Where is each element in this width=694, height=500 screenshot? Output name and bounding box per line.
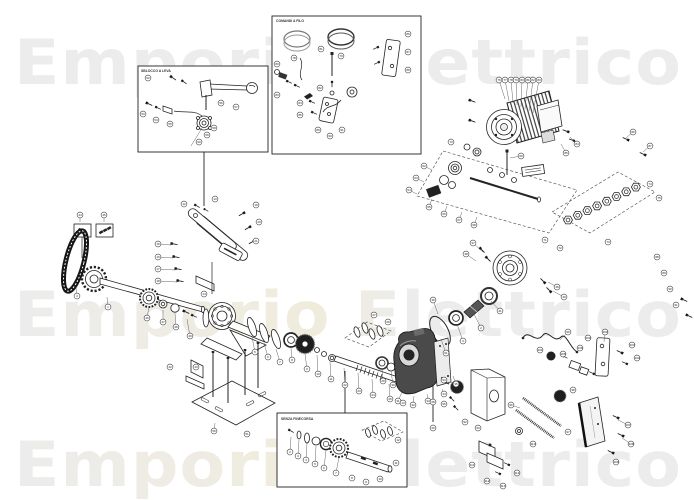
part-callout: 93 — [475, 425, 481, 431]
part-callout: 10 — [377, 476, 383, 482]
svg-text:67: 67 — [457, 218, 461, 222]
part-callout: 71 — [542, 237, 548, 243]
electric-motor — [468, 91, 647, 157]
svg-text:51: 51 — [245, 432, 249, 436]
part-callout: 86 — [626, 129, 636, 138]
svg-text:94: 94 — [442, 378, 446, 382]
part-callout: 70 — [448, 139, 454, 145]
part-callout: 14 — [201, 291, 207, 297]
svg-text:105: 105 — [560, 352, 565, 356]
part-callout: 32 — [410, 396, 416, 408]
part-callout: 92 — [462, 419, 468, 425]
svg-text:86: 86 — [631, 130, 635, 134]
part-callout: 13 — [212, 196, 218, 202]
svg-text:77: 77 — [503, 78, 507, 82]
svg-text:95: 95 — [442, 402, 446, 406]
svg-text:54: 54 — [154, 118, 158, 122]
svg-text:33: 33 — [426, 399, 430, 403]
part-callout: 11 — [393, 460, 399, 466]
svg-text:106: 106 — [577, 346, 582, 350]
svg-text:85: 85 — [298, 113, 302, 117]
part-callout: 42 — [167, 364, 173, 370]
svg-text:39: 39 — [555, 285, 559, 289]
part-callout: 58 — [211, 125, 217, 131]
svg-text:113: 113 — [501, 484, 506, 488]
svg-text:48: 48 — [174, 325, 178, 329]
svg-text:59: 59 — [205, 133, 209, 137]
part-callout: 8 — [349, 475, 355, 481]
svg-text:14: 14 — [202, 292, 206, 296]
svg-text:87: 87 — [648, 144, 652, 148]
part-callout: 67 — [456, 212, 462, 223]
svg-text:28: 28 — [386, 320, 390, 324]
svg-text:62: 62 — [422, 164, 426, 168]
svg-text:88: 88 — [406, 68, 410, 72]
svg-text:102: 102 — [602, 330, 607, 334]
part-callout: 44 — [77, 212, 83, 222]
svg-text:55: 55 — [168, 122, 172, 126]
svg-text:107: 107 — [625, 423, 630, 427]
part-callout: 89 — [315, 127, 321, 133]
part-callout: 38 — [463, 251, 476, 261]
svg-text:47: 47 — [161, 320, 165, 324]
svg-text:58: 58 — [212, 126, 216, 130]
coupling-kit-group — [417, 144, 577, 233]
svg-text:24: 24 — [371, 393, 375, 397]
svg-text:23: 23 — [357, 389, 361, 393]
svg-text:88: 88 — [655, 255, 659, 259]
svg-text:27: 27 — [372, 313, 376, 317]
svg-text:109: 109 — [613, 460, 618, 464]
part-callout: 106 — [577, 345, 583, 351]
svg-text:43: 43 — [194, 365, 198, 369]
svg-text:12: 12 — [396, 438, 400, 442]
inset-label-release: SBLOCCO A LEVA — [141, 69, 171, 73]
inset-box-no-limit-switch: SENZA FINECORSA — [277, 371, 407, 487]
svg-text:103: 103 — [629, 343, 634, 347]
part-callout: 65 — [426, 199, 432, 210]
part-callout: 11 — [328, 362, 334, 382]
svg-text:18: 18 — [156, 279, 160, 283]
part-callout: 15 — [155, 241, 171, 247]
part-callout: 96 — [508, 402, 520, 408]
svg-text:12: 12 — [182, 202, 186, 206]
part-callout: 24 — [370, 379, 376, 398]
part-callout: 110 — [530, 441, 536, 447]
svg-text:89: 89 — [662, 271, 666, 275]
svg-text:13: 13 — [213, 197, 217, 201]
svg-text:81: 81 — [526, 78, 530, 82]
svg-text:66: 66 — [442, 212, 446, 216]
part-callout: 91 — [339, 127, 345, 133]
svg-text:61: 61 — [444, 351, 448, 355]
svg-text:57: 57 — [234, 105, 238, 109]
svg-text:91: 91 — [340, 128, 344, 132]
part-callout: 59 — [204, 132, 210, 138]
part-callout: 34 — [441, 389, 447, 397]
part-callout: 90 — [667, 286, 673, 292]
part-callout: 86 — [405, 31, 411, 37]
svg-text:52: 52 — [146, 76, 150, 80]
svg-text:30: 30 — [391, 383, 395, 387]
svg-text:38: 38 — [464, 252, 468, 256]
part-callout: 63 — [413, 175, 424, 182]
svg-text:83: 83 — [537, 78, 541, 82]
svg-text:82: 82 — [531, 78, 535, 82]
part-callout: 95 — [441, 401, 447, 407]
svg-text:15: 15 — [156, 242, 160, 246]
part-callout: 27 — [371, 312, 377, 318]
part-callout: 13 — [400, 400, 406, 406]
svg-text:25: 25 — [388, 397, 392, 401]
svg-text:91: 91 — [674, 303, 678, 307]
part-callout: 69 — [510, 153, 524, 159]
svg-text:99: 99 — [566, 330, 570, 334]
svg-text:37: 37 — [471, 241, 475, 245]
part-callout: 43 — [193, 364, 199, 370]
exploded-parts-diagram: Emporio Elettrico Emporio Elettrico Empo… — [0, 0, 694, 500]
part-callout: 98 — [570, 387, 576, 393]
svg-text:81: 81 — [319, 47, 323, 51]
part-callout: 26 — [430, 425, 436, 431]
svg-text:35: 35 — [454, 382, 458, 386]
svg-text:56: 56 — [219, 101, 223, 105]
svg-text:90: 90 — [328, 134, 332, 138]
part-callout: 85 — [297, 112, 303, 118]
svg-text:71: 71 — [543, 238, 547, 242]
svg-text:76: 76 — [497, 78, 501, 82]
svg-text:68: 68 — [472, 223, 476, 227]
part-callout: 28 — [430, 399, 436, 405]
inset-box-release: SBLOCCO A LEVA — [138, 66, 268, 206]
svg-text:70: 70 — [449, 140, 453, 144]
svg-text:11: 11 — [394, 461, 397, 465]
svg-text:17: 17 — [156, 267, 160, 271]
svg-text:78: 78 — [509, 78, 513, 82]
part-callout: 83 — [274, 92, 280, 98]
part-callout: 90 — [327, 133, 333, 139]
svg-text:50: 50 — [212, 429, 216, 433]
svg-text:92: 92 — [463, 420, 467, 424]
part-callout: 89 — [661, 270, 667, 276]
part-callout: 104 — [634, 355, 640, 361]
svg-text:104: 104 — [634, 356, 639, 360]
part-callout: 68 — [471, 217, 477, 228]
part-callout: 20 — [256, 219, 262, 225]
svg-text:79: 79 — [339, 54, 343, 58]
part-callout: 52 — [145, 75, 151, 81]
svg-text:46: 46 — [145, 316, 149, 320]
svg-text:60: 60 — [197, 140, 201, 144]
part-callout: 45 — [101, 212, 107, 222]
svg-text:19: 19 — [254, 203, 258, 207]
part-callout: 16 — [155, 254, 173, 260]
inset-label-no-limit: SENZA FINECORSA — [281, 417, 314, 421]
part-callout: 100 — [585, 335, 591, 341]
part-callout: 97 — [565, 429, 571, 435]
part-callout: 88 — [654, 254, 660, 260]
part-callout: 79 — [338, 53, 344, 59]
part-callout: 12 — [181, 201, 187, 207]
inset-label-controls: COMANDI A FILO — [276, 19, 304, 23]
part-callout: 23 — [356, 373, 362, 394]
svg-text:97: 97 — [566, 430, 570, 434]
part-callout: 56 — [218, 100, 224, 106]
svg-text:69: 69 — [519, 154, 523, 158]
part-callout: 111 — [469, 462, 475, 468]
part-callout: 78 — [291, 55, 297, 61]
svg-text:10: 10 — [316, 372, 320, 376]
part-callout: 87 — [405, 49, 411, 55]
svg-text:114: 114 — [515, 471, 520, 475]
svg-text:79: 79 — [514, 78, 518, 82]
part-callout: 37 — [470, 240, 483, 252]
part-callout: 74 — [647, 181, 653, 187]
part-callout: 81 — [318, 46, 324, 52]
svg-text:20: 20 — [257, 220, 261, 224]
part-callout: 17 — [155, 266, 175, 272]
svg-text:80: 80 — [275, 62, 279, 66]
part-callout: 112 — [484, 478, 490, 484]
part-callout: 60 — [196, 139, 202, 145]
svg-text:16: 16 — [156, 255, 160, 259]
svg-text:74: 74 — [648, 182, 652, 186]
part-callout: 91 — [673, 302, 679, 308]
svg-text:111: 111 — [470, 463, 475, 467]
svg-text:34: 34 — [442, 392, 446, 396]
svg-text:84: 84 — [298, 101, 302, 105]
svg-text:36: 36 — [431, 298, 435, 302]
svg-text:41: 41 — [498, 309, 502, 313]
svg-text:100: 100 — [585, 336, 590, 340]
svg-text:28: 28 — [431, 400, 435, 404]
svg-text:93: 93 — [476, 426, 480, 430]
svg-text:21: 21 — [254, 239, 258, 243]
svg-text:90: 90 — [668, 287, 672, 291]
svg-text:26: 26 — [431, 426, 435, 430]
part-callout: 9 — [304, 354, 310, 372]
part-callout: 101 — [537, 347, 543, 353]
svg-text:29: 29 — [381, 379, 385, 383]
svg-text:42: 42 — [168, 365, 172, 369]
svg-text:72: 72 — [558, 246, 562, 250]
part-callout: 7 — [276, 349, 283, 365]
part-callout: 113 — [500, 483, 506, 489]
part-callout: 103 — [629, 342, 635, 348]
svg-text:44: 44 — [78, 213, 82, 217]
part-callout: 109 — [613, 459, 619, 465]
part-callout: 54 — [153, 117, 159, 123]
svg-text:65: 65 — [427, 205, 431, 209]
inset-box-controls: COMANDI A FILO — [272, 16, 421, 154]
part-callout: 64 — [406, 187, 417, 194]
svg-text:49: 49 — [188, 334, 192, 338]
part-callout: 28 — [385, 319, 391, 325]
svg-text:73: 73 — [606, 240, 610, 244]
svg-text:86: 86 — [406, 32, 410, 36]
svg-text:112: 112 — [485, 479, 490, 483]
part-callout: 88 — [405, 67, 411, 73]
part-callout: 12 — [395, 437, 401, 443]
part-callout: 51 — [244, 431, 250, 437]
part-callout: 62 — [421, 163, 432, 170]
svg-text:10: 10 — [378, 477, 382, 481]
part-callout: 105 — [560, 351, 566, 357]
svg-text:31: 31 — [396, 399, 400, 403]
svg-text:98: 98 — [571, 388, 575, 392]
fastener-kit-group — [552, 172, 655, 233]
part-callout: 72 — [557, 245, 563, 251]
svg-text:22: 22 — [343, 383, 347, 387]
part-callout: 55 — [167, 121, 173, 127]
part-callout: 85 — [561, 144, 569, 156]
svg-text:11: 11 — [329, 377, 332, 381]
svg-text:75: 75 — [657, 196, 661, 200]
svg-text:84: 84 — [575, 142, 579, 146]
svg-text:53: 53 — [141, 112, 145, 116]
part-callout: 66 — [441, 206, 447, 217]
part-callout: 19 — [253, 202, 259, 208]
part-callout: 94 — [441, 377, 447, 383]
part-callout: 84 — [570, 137, 580, 147]
svg-text:82: 82 — [318, 86, 322, 90]
part-callout: 114 — [514, 470, 520, 476]
part-callout: 80 — [274, 61, 280, 67]
svg-text:85: 85 — [564, 151, 568, 155]
svg-text:32: 32 — [411, 403, 415, 407]
svg-text:108: 108 — [628, 442, 633, 446]
svg-text:101: 101 — [537, 348, 542, 352]
part-callout: 73 — [605, 239, 611, 245]
part-callout: 10 — [315, 355, 321, 377]
part-callout: 107 — [618, 420, 631, 428]
svg-text:64: 64 — [407, 188, 411, 192]
part-callout: 84 — [297, 100, 303, 106]
part-callout: 75 — [656, 195, 662, 201]
svg-text:45: 45 — [102, 213, 106, 217]
part-callout: 53 — [140, 111, 146, 117]
part-callout: 57 — [233, 104, 239, 110]
svg-text:78: 78 — [292, 56, 296, 60]
part-callout: 9 — [363, 479, 369, 485]
svg-text:83: 83 — [275, 93, 279, 97]
svg-text:13: 13 — [401, 401, 405, 405]
exploded-parts-diagram-page: Emporio Elettrico Emporio Elettrico Empo… — [0, 0, 694, 500]
svg-text:40: 40 — [562, 295, 566, 299]
svg-text:63: 63 — [414, 176, 418, 180]
svg-text:80: 80 — [520, 78, 524, 82]
svg-text:96: 96 — [509, 403, 513, 407]
svg-text:110: 110 — [531, 442, 536, 446]
svg-text:89: 89 — [316, 128, 320, 132]
svg-text:87: 87 — [406, 50, 410, 54]
part-callout: 21 — [253, 238, 259, 244]
part-callout: 82 — [317, 85, 323, 91]
part-callout: 87 — [643, 143, 653, 152]
watermark-text: Emporio Elettrico — [14, 278, 682, 351]
